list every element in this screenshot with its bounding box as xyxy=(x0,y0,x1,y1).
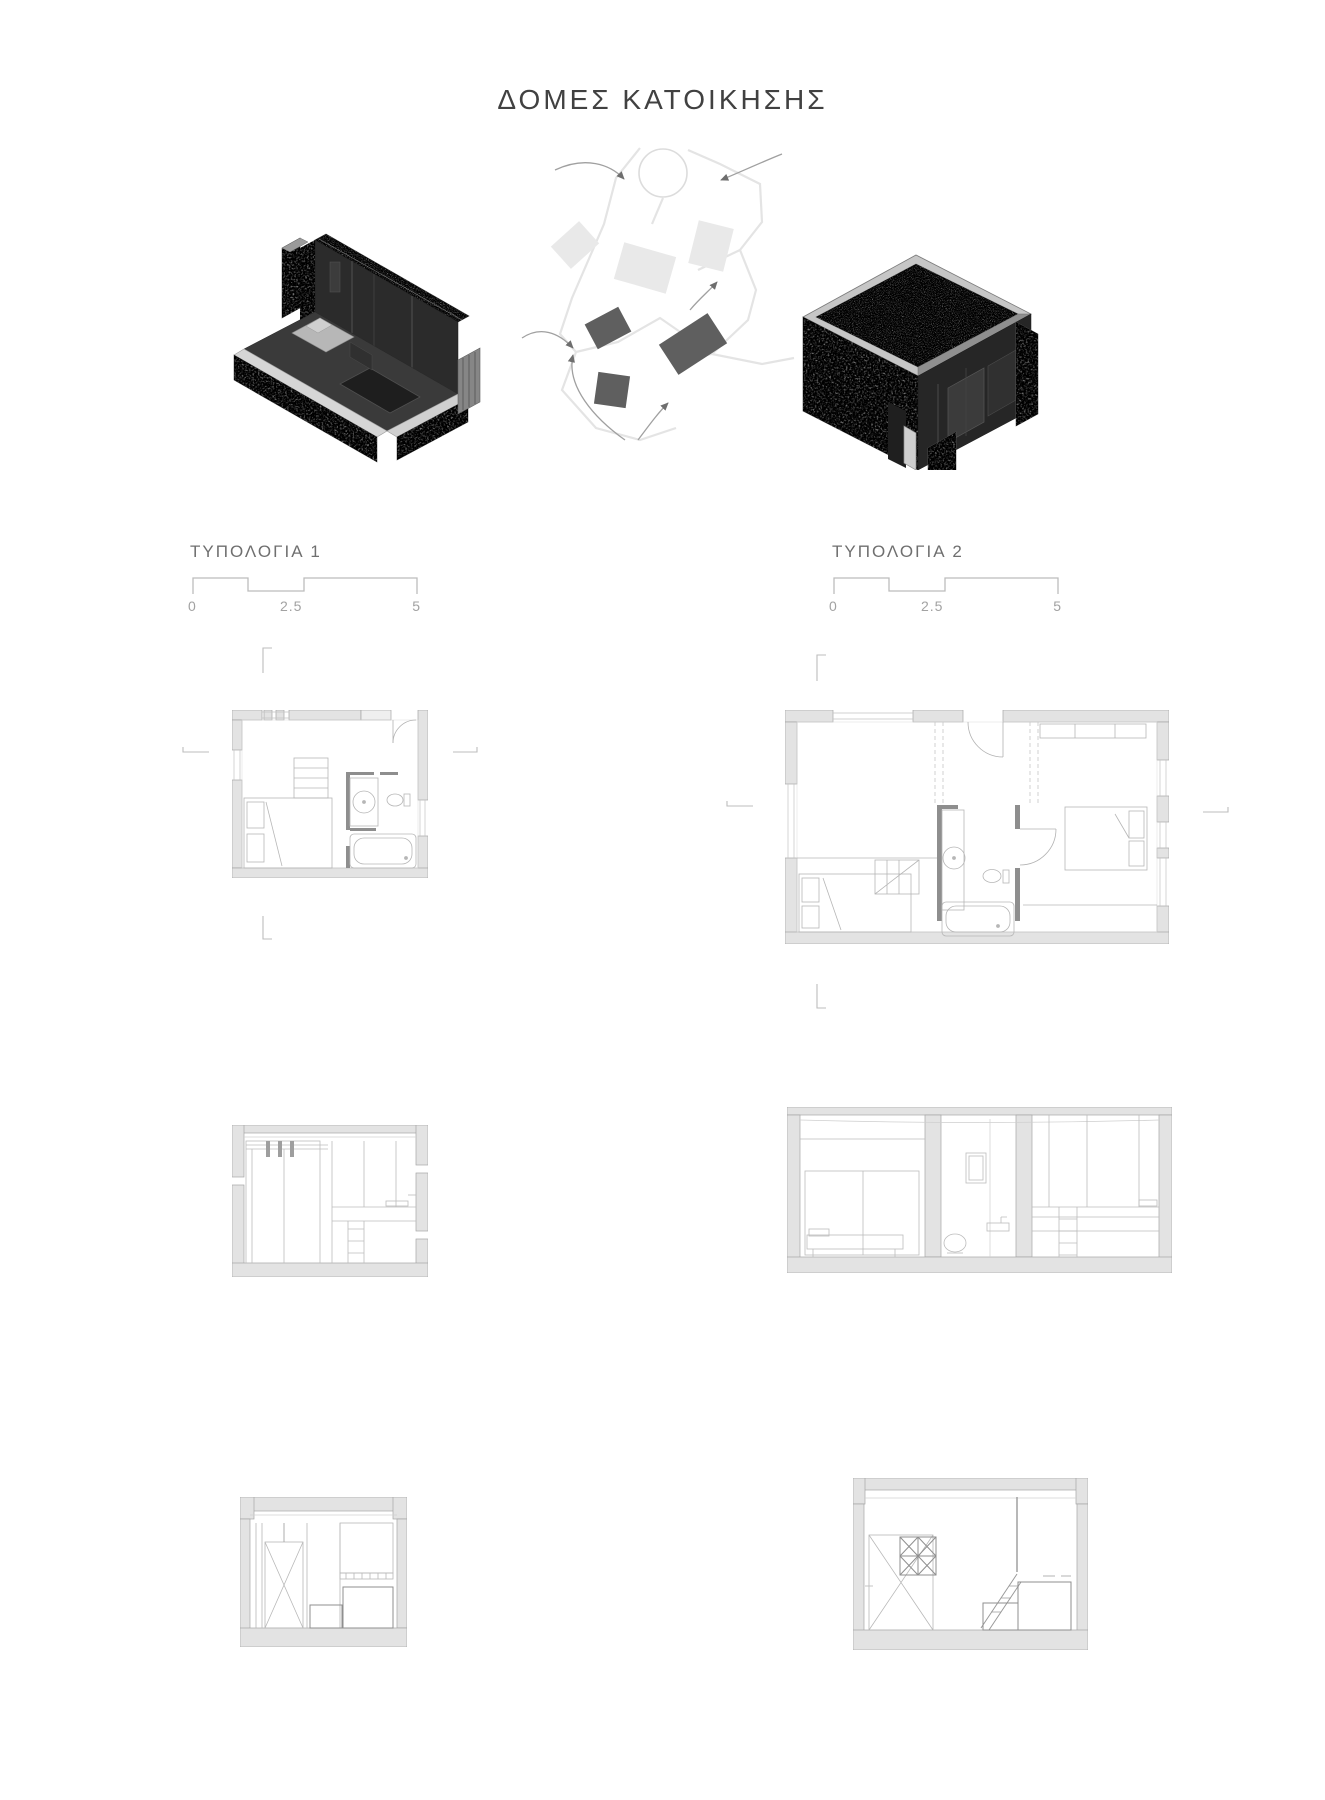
sec1a-wardrobe xyxy=(246,1141,328,1263)
plan1-furniture xyxy=(244,758,332,868)
plan2-left-room xyxy=(797,858,937,932)
sec2a-bathroom xyxy=(944,1119,1009,1257)
typology-2-section-b xyxy=(853,1478,1088,1650)
plan2-bath-door xyxy=(1020,829,1056,865)
typology-2-section-a xyxy=(787,1107,1172,1273)
plan2-bath-fixtures xyxy=(942,810,1014,936)
sec1b-cabinets xyxy=(310,1523,393,1628)
presentation-board: ΔΟΜΕΣ ΚΑΤΟΙΚΗΣΗΣ xyxy=(0,0,1325,1800)
sec2a-structure xyxy=(787,1107,1172,1273)
scale-bar-line xyxy=(192,576,418,598)
site-highlighted-blocks xyxy=(585,307,727,408)
plan2-skylight-dashes xyxy=(935,722,1038,805)
sec2b-shelf-unit xyxy=(900,1537,936,1575)
axo1-stone-return xyxy=(300,240,315,320)
scale-label-0: 0 xyxy=(829,598,838,614)
scale-bar-typology-1: 0 2.5 5 xyxy=(192,576,418,622)
scale-bar-line xyxy=(833,576,1059,598)
plan2-bathroom-walls xyxy=(937,805,1020,921)
plan1-entry-door xyxy=(393,720,416,743)
scale-label-2-5: 2.5 xyxy=(921,598,943,614)
typology-2-label: ΤΥΠΟΛΟΓΙΑ 2 xyxy=(832,542,964,562)
sec2b-right-side xyxy=(981,1497,1071,1630)
typology-1-label: ΤΥΠΟΛΟΓΙΑ 1 xyxy=(190,542,322,562)
scale-label-0: 0 xyxy=(188,598,197,614)
plan1-inner-outline xyxy=(242,720,418,868)
sec2b-glazed-wall xyxy=(865,1535,933,1630)
plan1-bath-fixtures xyxy=(350,778,416,868)
plan1-walls xyxy=(232,710,428,878)
scale-label-2-5: 2.5 xyxy=(280,598,302,614)
plan2-windows xyxy=(788,713,1166,906)
sec2a-left-room xyxy=(800,1139,925,1257)
sec2a-ceiling-line xyxy=(800,1120,1159,1123)
axonometric-cutaway-typology-1 xyxy=(222,210,494,465)
sec1a-cabinets xyxy=(332,1141,416,1263)
typology-1-section-b xyxy=(240,1497,407,1647)
scale-bar-typology-2: 0 2.5 5 xyxy=(833,576,1059,622)
typology-1-section-a xyxy=(232,1125,428,1277)
sec1b-door xyxy=(256,1523,307,1628)
plan2-right-room xyxy=(1023,724,1157,905)
typology-1-floor-plan xyxy=(232,710,428,878)
plan2-entry-door xyxy=(968,722,1003,757)
site-arrows xyxy=(522,154,782,440)
axo2-door-opening xyxy=(888,402,906,468)
scale-label-5: 5 xyxy=(1053,598,1062,614)
site-circle-landmark xyxy=(639,149,687,197)
axo2-stone-pillar xyxy=(1016,322,1038,426)
page-title: ΔΟΜΕΣ ΚΑΤΟΙΚΗΣΗΣ xyxy=(0,84,1325,116)
sec2a-right-room xyxy=(1032,1115,1159,1257)
site-plan-with-circulation-arrows xyxy=(500,128,800,478)
typology-2-floor-plan xyxy=(785,710,1169,944)
scale-label-5: 5 xyxy=(412,598,421,614)
axonometric-cutaway-typology-2 xyxy=(788,222,1040,470)
plan2-inner-outline xyxy=(797,722,1157,932)
